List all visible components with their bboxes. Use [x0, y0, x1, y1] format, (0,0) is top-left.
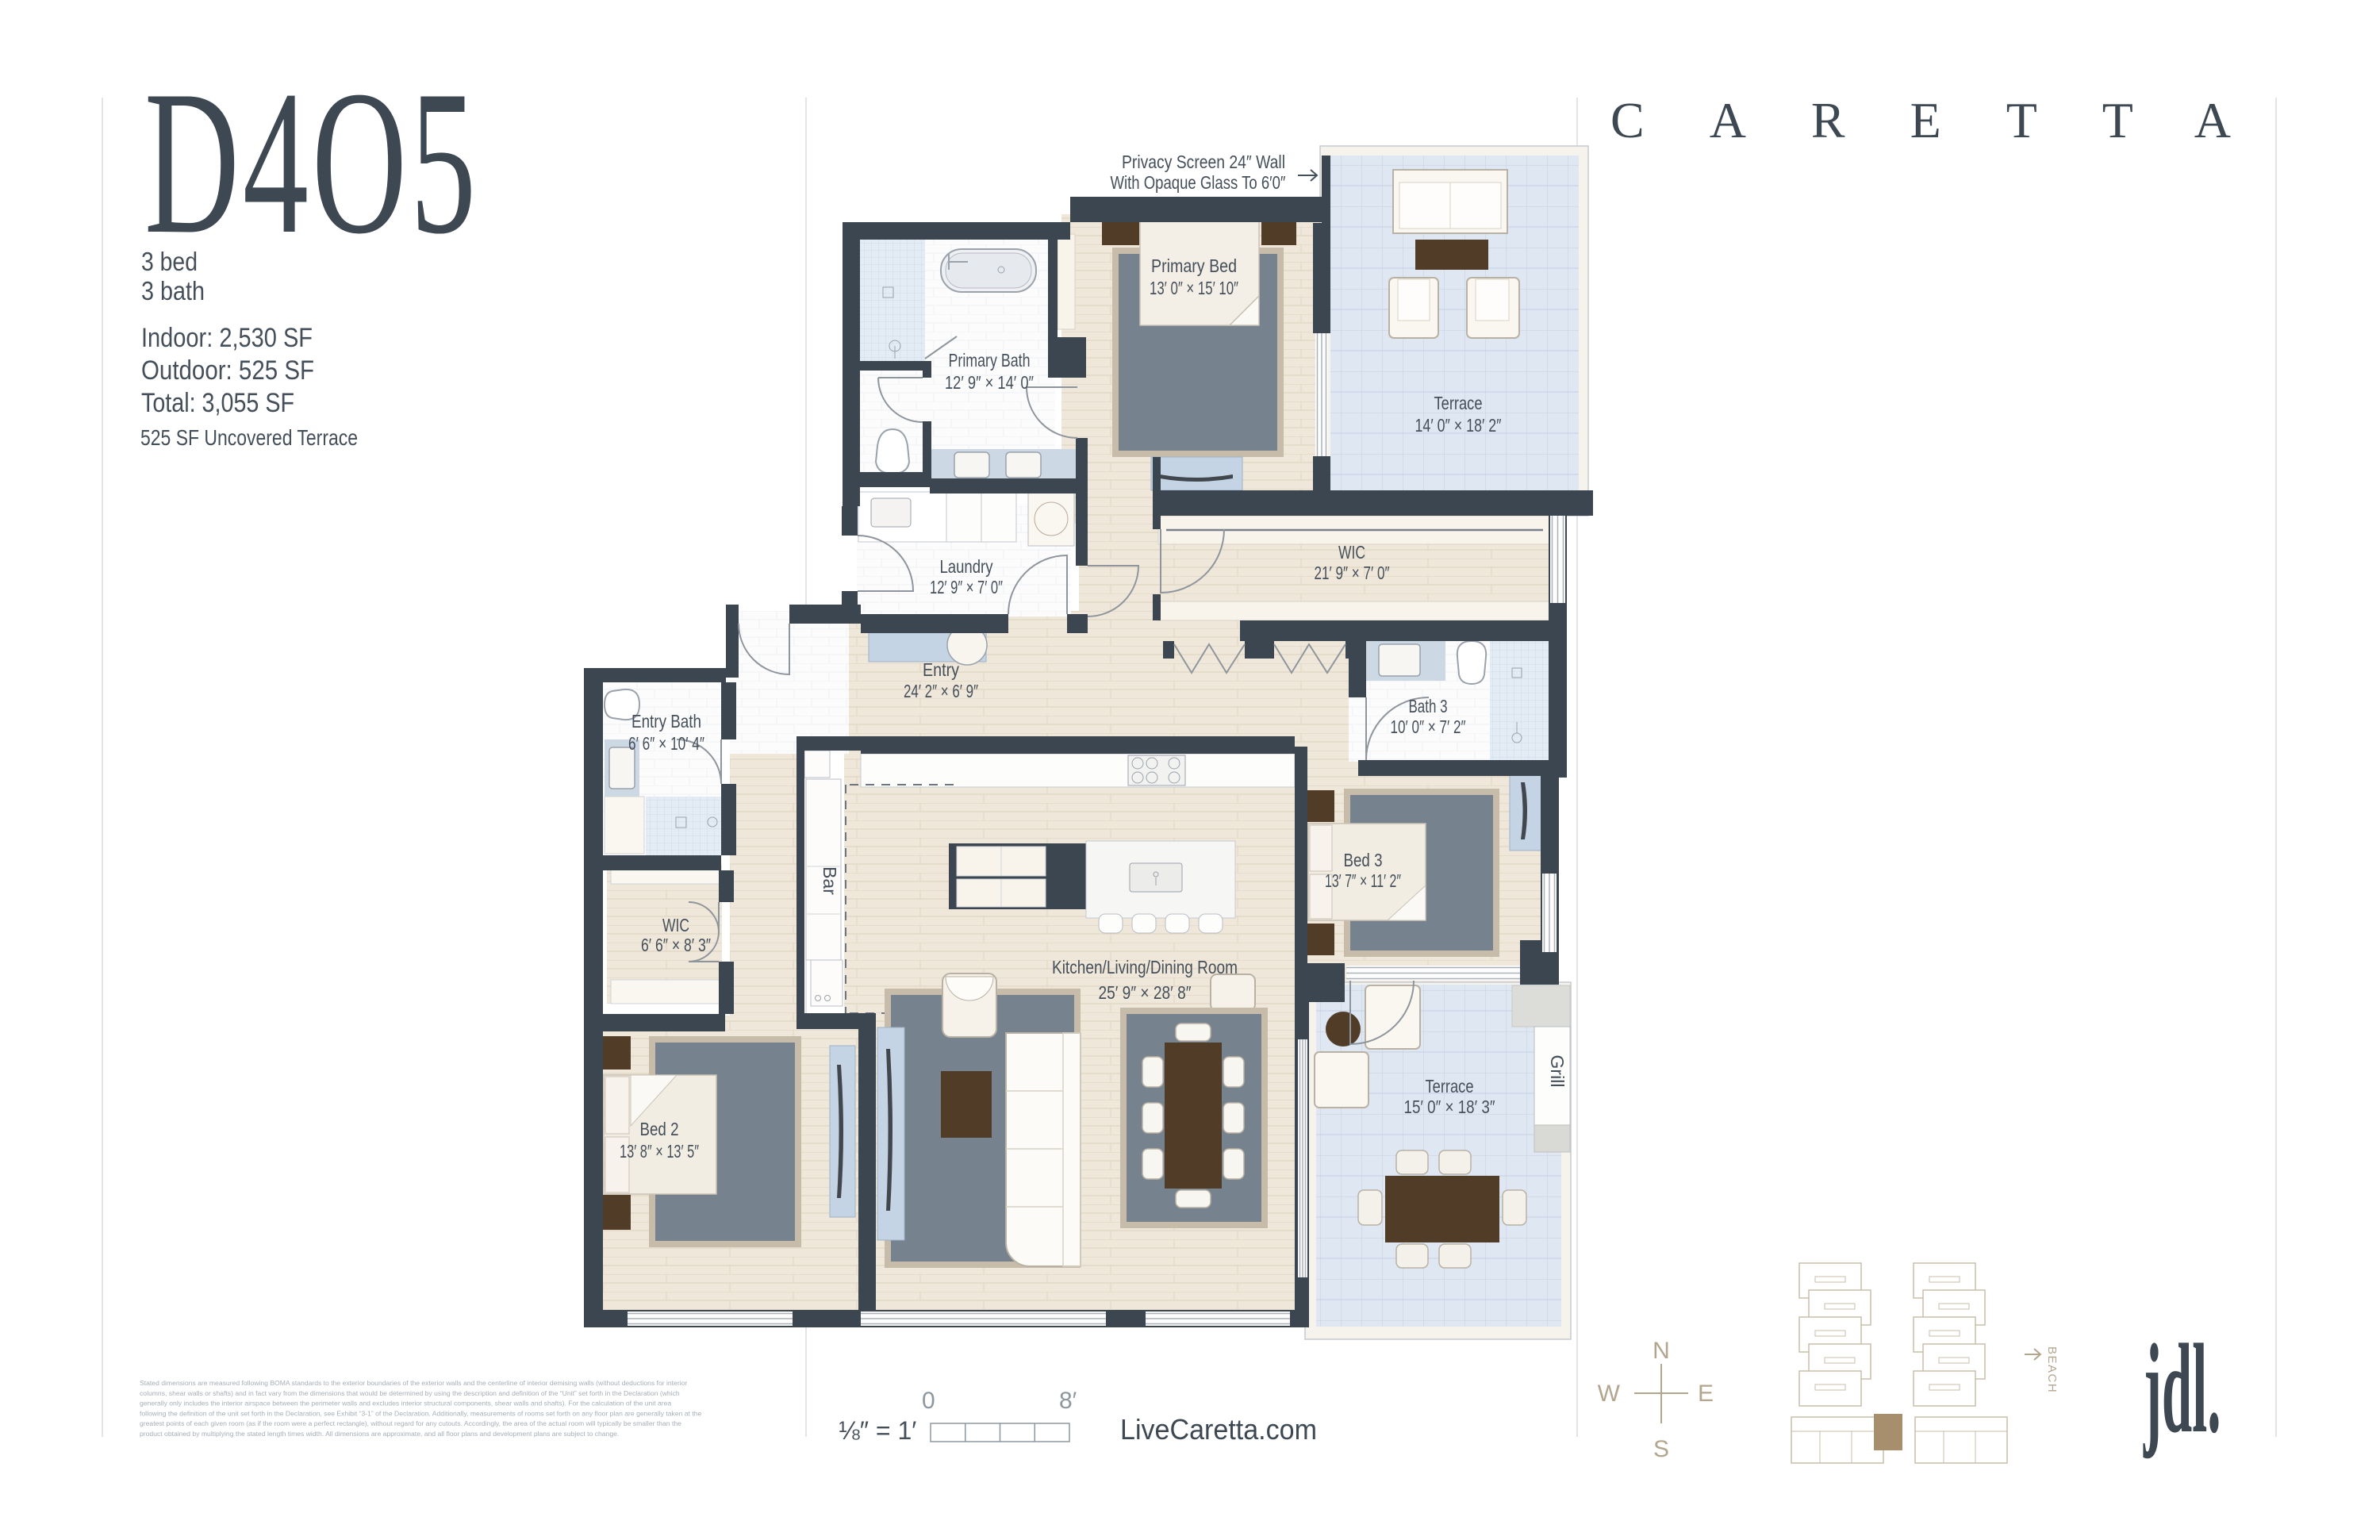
svg-text:Outdoor: 525 SF: Outdoor: 525 SF: [141, 355, 314, 386]
svg-text:Indoor: 2,530 SF: Indoor: 2,530 SF: [141, 323, 313, 353]
svg-text:Bed 3: Bed 3: [1344, 850, 1383, 870]
svg-text:21′ 9″ × 7′ 0″: 21′ 9″ × 7′ 0″: [1315, 563, 1390, 583]
svg-text:Terrace: Terrace: [1434, 393, 1483, 413]
svg-text:6′ 6″ × 8′ 3″: 6′ 6″ × 8′ 3″: [641, 935, 711, 955]
svg-text:following the definition of th: following the definition of the unit set…: [140, 1409, 701, 1417]
svg-text:Laundry: Laundry: [940, 556, 993, 577]
svg-text:15′ 0″ × 18′ 3″: 15′ 0″ × 18′ 3″: [1404, 1096, 1495, 1117]
svg-text:Terrace: Terrace: [1426, 1076, 1474, 1096]
svg-text:Bed 2: Bed 2: [640, 1119, 679, 1139]
svg-text:3 bed: 3 bed: [141, 247, 198, 276]
svg-text:WIC: WIC: [1338, 542, 1365, 563]
svg-text:⅛″ = 1′: ⅛″ = 1′: [839, 1416, 916, 1445]
svg-text:Stated dimensions are measured: Stated dimensions are measured following…: [140, 1379, 687, 1387]
svg-text:jdl.: jdl.: [2143, 1318, 2221, 1459]
svg-text:columns, shear walls or shafts: columns, shear walls or shafts) and in f…: [140, 1389, 680, 1397]
svg-text:E: E: [1698, 1381, 1714, 1407]
svg-text:10′ 0″ × 7′ 2″: 10′ 0″ × 7′ 2″: [1391, 716, 1466, 737]
svg-text:13′ 8″ × 13′ 5″: 13′ 8″ × 13′ 5″: [620, 1141, 699, 1162]
svg-text:Primary Bath: Primary Bath: [949, 350, 1031, 371]
svg-text:W: W: [1598, 1381, 1621, 1407]
svg-text:3 bath: 3 bath: [141, 276, 205, 305]
svg-text:0: 0: [922, 1388, 935, 1414]
svg-text:S: S: [1653, 1436, 1669, 1462]
svg-text:13′ 7″ × 11′ 2″: 13′ 7″ × 11′ 2″: [1325, 870, 1401, 891]
svg-text:Grill: Grill: [1547, 1055, 1568, 1088]
svg-text:N: N: [1653, 1338, 1670, 1364]
svg-text:6′ 6″ × 10′ 4″: 6′ 6″ × 10′ 4″: [628, 733, 704, 754]
svg-text:Bath 3: Bath 3: [1409, 696, 1448, 716]
svg-text:generally only includes the in: generally only includes the interior air…: [140, 1400, 671, 1408]
svg-text:Primary Bed: Primary Bed: [1151, 255, 1237, 276]
svg-text:Bar: Bar: [820, 866, 840, 895]
svg-text:24′ 2″ × 6′ 9″: 24′ 2″ × 6′ 9″: [904, 681, 978, 701]
svg-text:LiveCaretta.com: LiveCaretta.com: [1120, 1413, 1317, 1446]
svg-text:D4O5: D4O5: [144, 48, 479, 278]
svg-text:Total: 3,055 SF: Total: 3,055 SF: [141, 388, 294, 418]
svg-text:BEACH: BEACH: [2045, 1346, 2059, 1393]
svg-text:13′ 0″ × 15′ 10″: 13′ 0″ × 15′ 10″: [1150, 278, 1238, 298]
svg-text:8′: 8′: [1059, 1388, 1077, 1414]
svg-text:525 SF Uncovered Terrace: 525 SF Uncovered Terrace: [140, 425, 358, 450]
svg-text:12′ 9″ × 7′ 0″: 12′ 9″ × 7′ 0″: [930, 577, 1003, 597]
svg-text:CARETTA: CARETTA: [1610, 92, 2296, 148]
svg-text:14′ 0″ × 18′ 2″: 14′ 0″ × 18′ 2″: [1415, 415, 1502, 436]
svg-text:greatest points of each given: greatest points of each given room (as i…: [140, 1419, 681, 1427]
svg-text:Kitchen/Living/Dining Room: Kitchen/Living/Dining Room: [1052, 957, 1238, 977]
svg-text:WIC: WIC: [662, 915, 689, 935]
svg-text:product obtained by multiplyin: product obtained by multiplying the stat…: [140, 1430, 619, 1438]
svg-text:25′ 9″ × 28′ 8″: 25′ 9″ × 28′ 8″: [1099, 982, 1192, 1003]
svg-text:Privacy Screen 24″ Wall: Privacy Screen 24″ Wall: [1122, 152, 1285, 172]
svg-text:12′ 9″ × 14′ 0″: 12′ 9″ × 14′ 0″: [945, 372, 1034, 393]
svg-text:With Opaque Glass To 6′0″: With Opaque Glass To 6′0″: [1111, 172, 1286, 193]
svg-text:Entry: Entry: [923, 659, 959, 680]
svg-text:Entry Bath: Entry Bath: [631, 711, 701, 732]
